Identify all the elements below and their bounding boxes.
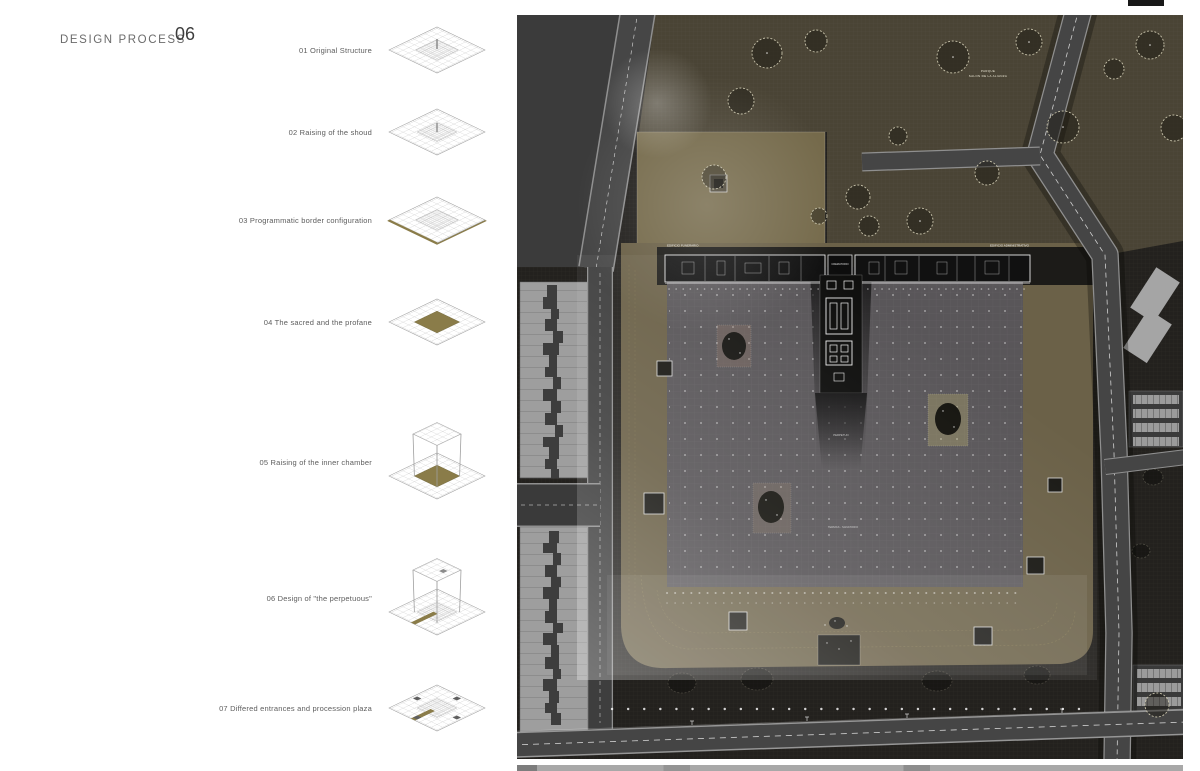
step-label: 04 The sacred and the profane	[264, 318, 372, 327]
process-step-01: 01 Original Structure	[0, 18, 492, 82]
step-label: 07 Differed entrances and procession pla…	[219, 704, 372, 713]
process-step-03: 03 Programmatic border configuration	[0, 188, 492, 252]
step-04-diagram-icon	[382, 290, 492, 354]
step-label: 03 Programmatic border configuration	[239, 216, 372, 225]
process-step-02: 02 Raising of the shoud	[0, 100, 492, 164]
step-07-diagram-icon	[382, 676, 492, 740]
perpetuo-label: PERPETUO	[833, 433, 849, 437]
crematorio-label: CREMATORIO	[831, 262, 848, 266]
process-step-06: 06 Design of "the perpetuous"	[0, 546, 492, 650]
building-left-label: EDIFICIO FUNERARIO	[667, 244, 699, 248]
site-plan-drawing: PARQUE SALON DE LA ALIANZA EDIFICIO FUNE…	[517, 15, 1183, 759]
process-step-04: 04 The sacred and the profane	[0, 290, 492, 354]
step-01-diagram-icon	[382, 18, 492, 82]
park-label-line2: SALON DE LA ALIANZA	[969, 74, 1007, 78]
building-right-label: EDIFICIO ADMINISTRATIVO	[990, 244, 1030, 248]
cropped-panel-top-sliver	[1128, 0, 1164, 6]
step-05-diagram-icon	[382, 410, 492, 514]
process-step-07: 07 Differed entrances and procession pla…	[0, 676, 492, 740]
step-label: 02 Raising of the shoud	[289, 128, 372, 137]
step-03-diagram-icon	[382, 188, 492, 252]
step-label: 06 Design of "the perpetuous"	[267, 594, 372, 603]
step-label: 01 Original Structure	[299, 46, 372, 55]
step-02-diagram-icon	[382, 100, 492, 164]
termas-label: TERMAS - SANATORIO	[828, 525, 859, 529]
step-label: 05 Raising of the inner chamber	[259, 458, 372, 467]
cropped-panel-bottom-band	[517, 765, 1183, 771]
step-06-diagram-icon	[382, 546, 492, 650]
process-step-05: 05 Raising of the inner chamber	[0, 410, 492, 514]
park-label-line1: PARQUE	[981, 69, 995, 73]
presentation-board: DESIGN PROCESS 06 01 Original Structure …	[0, 0, 1200, 771]
